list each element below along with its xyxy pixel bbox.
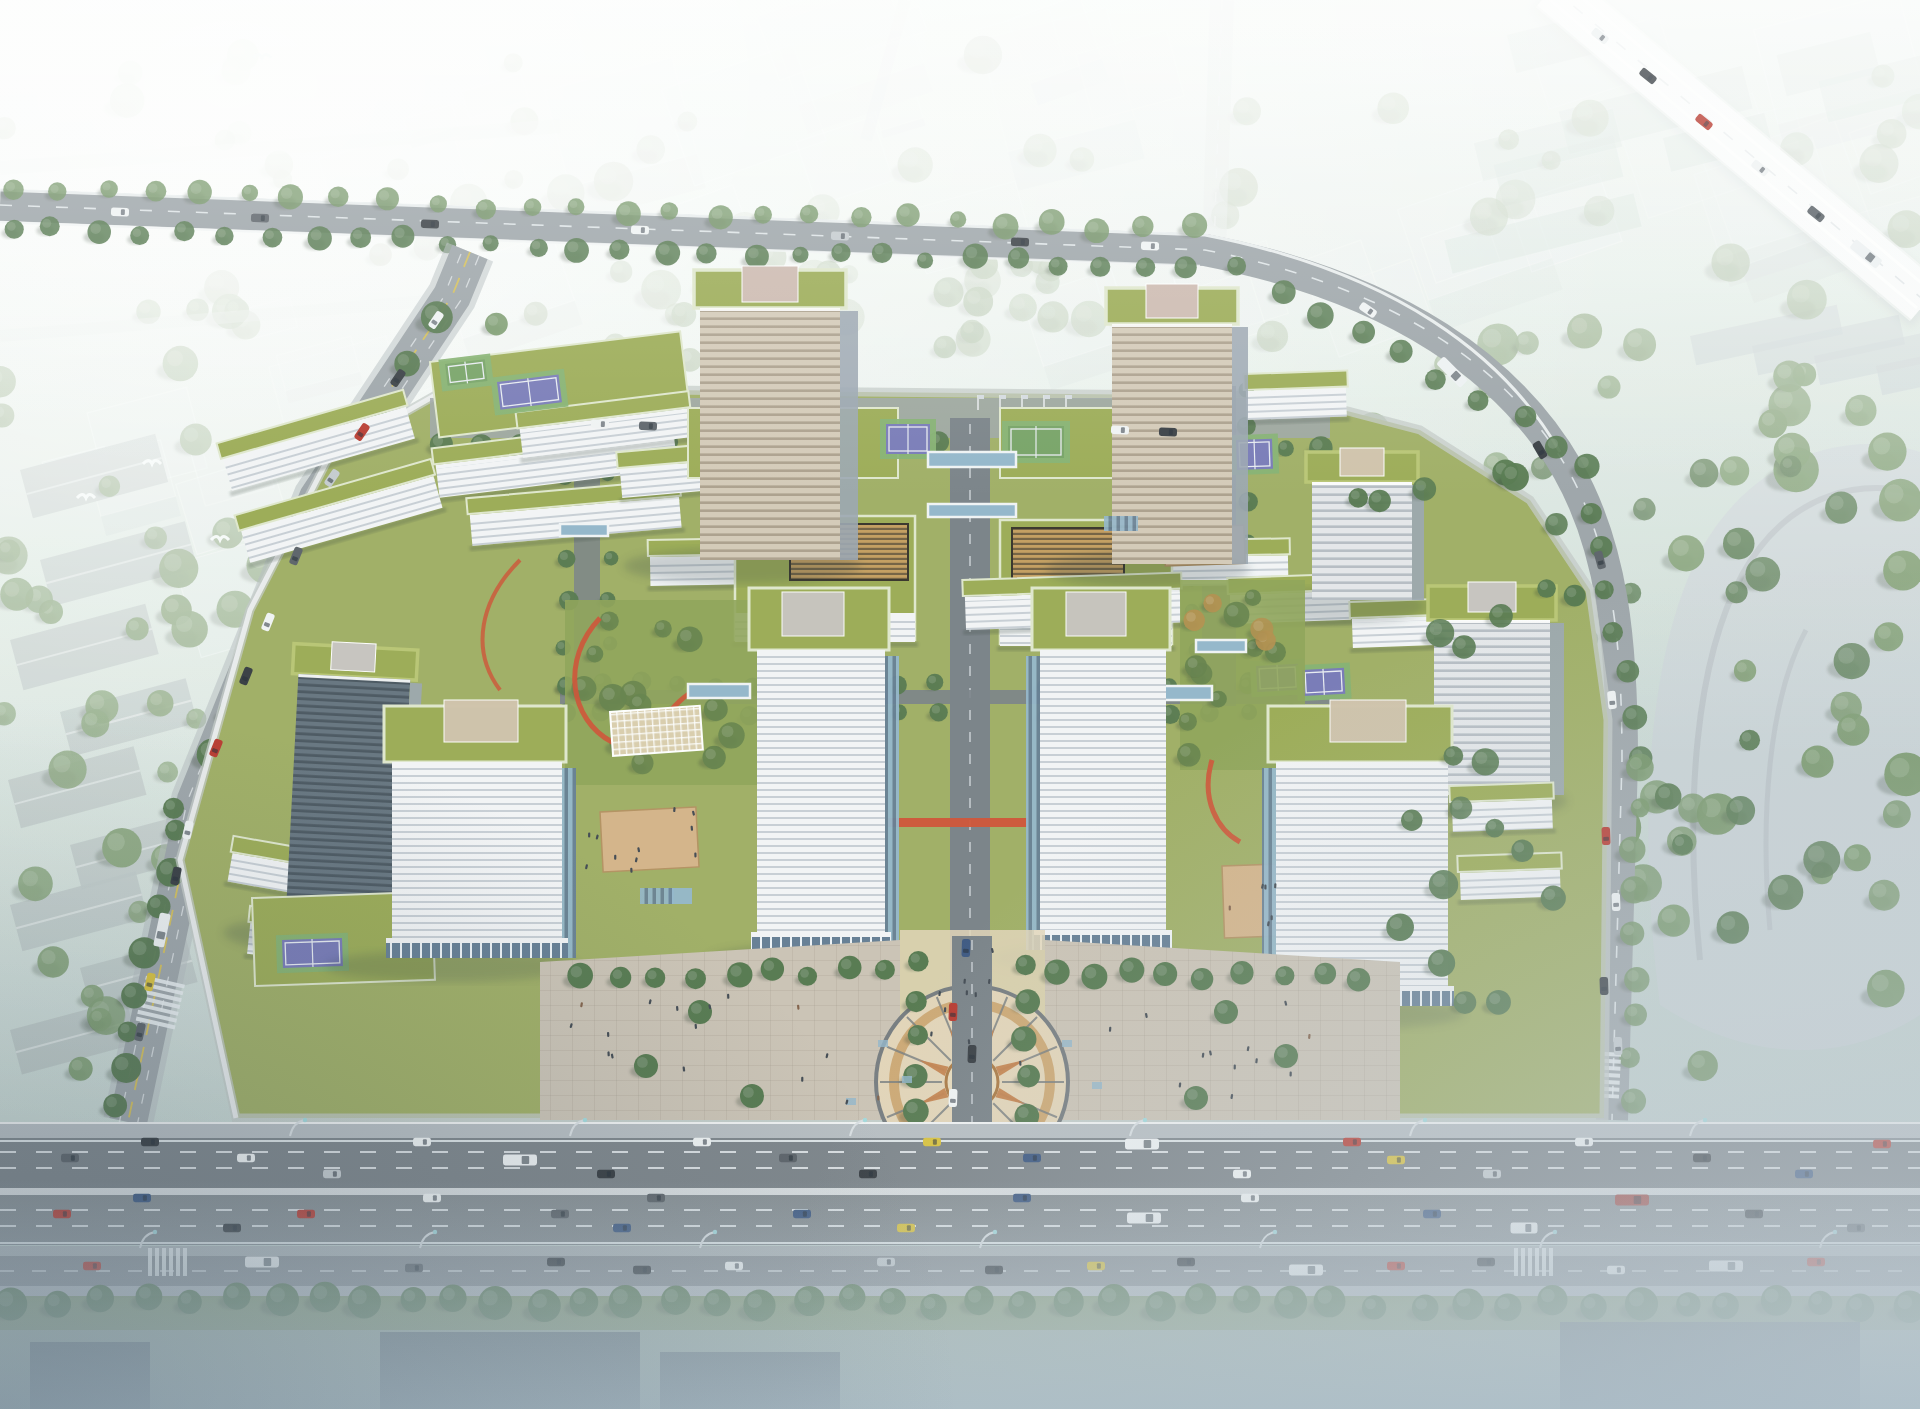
rendering-canvas [0,0,1920,1409]
color-grade-overlays [0,0,1920,1409]
aerial-campus-rendering: Aerial architectural rendering of a gree… [0,0,1920,1409]
bottom-left-shade [0,0,1920,1409]
